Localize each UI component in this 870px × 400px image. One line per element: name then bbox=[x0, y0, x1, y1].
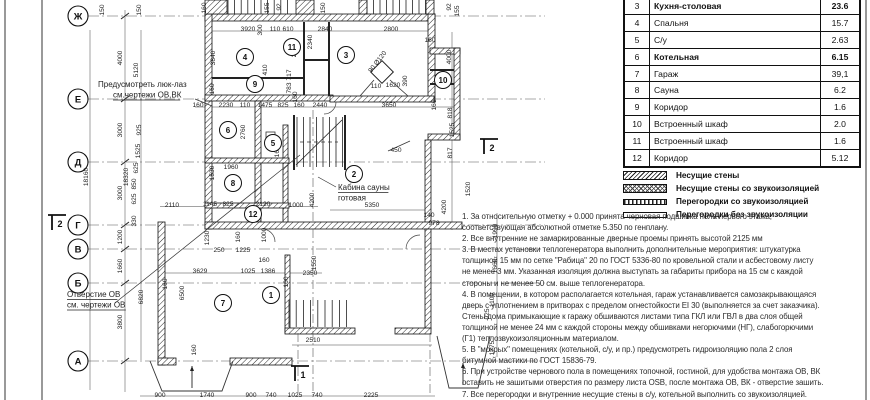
general-notes: 1. За относительную отметку + 0.000 прин… bbox=[462, 211, 866, 400]
dimension-label: 740 bbox=[311, 392, 322, 399]
dimension-label: 900 bbox=[154, 392, 165, 399]
dimension-label: 2340 bbox=[307, 34, 314, 49]
room-table-cell-name: Котельная bbox=[650, 48, 821, 65]
dimension-label: 4200 bbox=[441, 199, 448, 214]
walls bbox=[158, 0, 462, 365]
dimension-labels: 1501501601559215092155392030011061028402… bbox=[83, 2, 499, 399]
dimension-label: 160 bbox=[201, 2, 208, 13]
dimension-label: 140 bbox=[423, 212, 434, 219]
room-table-row: 4Спальня15.7 bbox=[624, 14, 860, 31]
dimension-label: 3920 bbox=[241, 26, 256, 33]
porches-and-leaders bbox=[115, 99, 490, 395]
dimension-label: 300 bbox=[257, 24, 264, 35]
note-line: 2. Все внутренние не замаркированные две… bbox=[462, 233, 866, 244]
dimension-label: 3840 bbox=[210, 50, 217, 65]
legend-item: Несущие стены bbox=[623, 169, 868, 182]
dimension-label: 18320 bbox=[123, 168, 130, 187]
dimension-label: 2440 bbox=[313, 102, 328, 109]
room-table-row: 12Коридор5.12 bbox=[624, 150, 860, 167]
dimension-label: 900 bbox=[245, 392, 256, 399]
note-line: битумной мастики по ГОСТ 15836-79. bbox=[462, 355, 866, 366]
room-table-cell-num: 7 bbox=[624, 65, 650, 82]
room-table-cell-name: Коридор bbox=[650, 150, 821, 167]
room-number: 7 bbox=[221, 299, 226, 308]
dimension-label: 160 bbox=[292, 91, 299, 102]
room-table-cell-area: 23.6 bbox=[821, 0, 861, 14]
room-table-cell-area: 2.63 bbox=[821, 31, 861, 48]
dimension-label: 2760 bbox=[240, 124, 247, 139]
annotation-text: готовая bbox=[338, 194, 366, 203]
dimension-label: 160 bbox=[283, 276, 290, 287]
wall-segment bbox=[395, 328, 431, 334]
leader-line bbox=[318, 177, 336, 187]
room-number: 10 bbox=[439, 76, 448, 85]
room-table-row: 3Кухня-столовая23.6 bbox=[624, 0, 860, 14]
dimension-label: 390 bbox=[402, 75, 409, 86]
note-line: 5. В "мокрых" помещениях (котельной, с/у… bbox=[462, 344, 866, 355]
wall-segment bbox=[425, 229, 431, 329]
note-line: 3. В местах установки теплогенератора вы… bbox=[462, 244, 866, 255]
dimension-label: 625 bbox=[131, 193, 138, 204]
dimension-label: 3629 bbox=[193, 268, 208, 275]
legend-label: Несущие стены со звукоизоляцией bbox=[676, 184, 819, 193]
room-table-cell-num: 5 bbox=[624, 31, 650, 48]
wall-segment bbox=[205, 14, 435, 21]
room-table-cell-area: 1.6 bbox=[821, 99, 861, 116]
dimension-label: 1660 bbox=[117, 258, 124, 273]
dimension-label: 2225 bbox=[364, 392, 379, 399]
room-table-cell-area: 5.12 bbox=[821, 150, 861, 167]
room-number: 8 bbox=[231, 179, 236, 188]
wall-segment bbox=[205, 0, 227, 14]
room-number: 9 bbox=[253, 80, 258, 89]
dimension-label: 1000 bbox=[261, 227, 268, 242]
dimension-label: 92 bbox=[446, 3, 453, 11]
room-table-row: 5С/у2.63 bbox=[624, 31, 860, 48]
dimension-label: 717 bbox=[286, 69, 293, 80]
dimension-label: 2800 bbox=[384, 26, 399, 33]
wall-segment bbox=[296, 0, 314, 14]
dimension-label: 92 bbox=[276, 3, 283, 11]
dimension-label: 155 bbox=[454, 5, 461, 16]
porch-outline bbox=[150, 361, 233, 391]
section-number: 2 bbox=[489, 143, 494, 153]
note-line: толщиной 15 мм по сетке "Рабица" 20 по Г… bbox=[462, 255, 866, 266]
dimension-label: 1025 bbox=[241, 268, 256, 275]
dimension-label: 825 bbox=[277, 102, 288, 109]
dimension-label: 3650 bbox=[382, 102, 397, 109]
room-table-cell-area: 39,1 bbox=[821, 65, 861, 82]
dimension-label: 1620 bbox=[386, 82, 401, 89]
room-table-cell-num: 10 bbox=[624, 116, 650, 133]
dimension-label: 3800 bbox=[117, 314, 124, 329]
note-line: Стены дома примыкающие к гаражу обшивают… bbox=[462, 311, 866, 322]
room-table-cell-num: 3 bbox=[624, 0, 650, 14]
dimension-label: 1550 bbox=[311, 255, 318, 270]
room-number: 6 bbox=[226, 126, 231, 135]
annotations: Предусмотреть люк-лазсм.чертежи ОВ,ВКОтв… bbox=[67, 80, 390, 310]
dimension-label: 110 bbox=[270, 26, 281, 33]
dimension-label: 1740 bbox=[200, 392, 215, 399]
dimension-label: 160 bbox=[209, 83, 216, 94]
axis-letter: Д bbox=[75, 157, 82, 168]
room-table-cell-num: 9 bbox=[624, 99, 650, 116]
dimension-label: 18160 bbox=[83, 168, 90, 187]
room-number: 4 bbox=[243, 53, 248, 62]
axis-letter: Е bbox=[75, 94, 81, 105]
dimension-label: 160 bbox=[431, 99, 438, 110]
room-table-cell-area: 15.7 bbox=[821, 14, 861, 31]
legend-swatch-bearing bbox=[623, 171, 667, 180]
wall-segment bbox=[205, 14, 212, 229]
dimension-label: 2510 bbox=[306, 337, 321, 344]
annotation-text: Отверстие ОВ bbox=[67, 290, 120, 299]
wall-segment bbox=[205, 222, 462, 229]
room-table-cell-name: Встроенный шкаф bbox=[650, 116, 821, 133]
room-table-cell-name: Спальня bbox=[650, 14, 821, 31]
room-table-cell-num: 12 bbox=[624, 150, 650, 167]
dimension-label: 978 bbox=[428, 220, 439, 227]
door-swing-arc bbox=[406, 235, 420, 249]
dimension-label: 625 bbox=[133, 162, 140, 173]
wall-segment bbox=[285, 328, 355, 334]
dimension-label: 330 bbox=[131, 215, 138, 226]
dimension-label: 2110 bbox=[165, 202, 180, 209]
wall-segment bbox=[158, 222, 165, 365]
dimension-label: 2230 bbox=[219, 102, 234, 109]
room-table-cell-name: Сауна bbox=[650, 82, 821, 99]
dimension-label: 110 bbox=[240, 102, 251, 109]
note-line: 7. Все перегородки и внутренние несущие … bbox=[462, 389, 866, 400]
dimension-label: 1225 bbox=[236, 247, 251, 254]
note-line: дверь с уплотнением в притворах с предел… bbox=[462, 300, 866, 311]
dimension-label: 410 bbox=[262, 64, 269, 75]
dimension-label: 1200 bbox=[117, 229, 124, 244]
dimension-label: 825 bbox=[222, 201, 233, 208]
dimension-label: 5120 bbox=[133, 62, 140, 77]
note-line: соответствующая абсолютной отметке 5.350… bbox=[462, 222, 866, 233]
room-table-row: 7Гараж39,1 bbox=[624, 65, 860, 82]
axis-letter: Ж bbox=[73, 11, 83, 22]
dimension-label: 1960 bbox=[224, 164, 239, 171]
legend-label: Перегородки со звукоизоляцией bbox=[676, 197, 808, 206]
dimension-label: 1386 bbox=[261, 268, 276, 275]
dimension-label: 1145 bbox=[203, 201, 218, 208]
stair-break-line bbox=[296, 120, 342, 165]
wall-segment bbox=[230, 358, 292, 365]
section-number: 1 bbox=[300, 370, 305, 380]
dimension-label: 160 bbox=[191, 344, 198, 355]
dimension-label: 818 bbox=[447, 107, 454, 118]
room-table-cell-name: Коридор bbox=[650, 99, 821, 116]
room-table-row: 8Сауна6.2 bbox=[624, 82, 860, 99]
room-table-row: 11Встроенный шкаф1.6 bbox=[624, 133, 860, 150]
room-table-cell-name: Гараж bbox=[650, 65, 821, 82]
room-table-cell-area: 2.0 bbox=[821, 116, 861, 133]
axis-letter: А bbox=[75, 356, 82, 367]
annotation-text: см.чертежи ОВ,ВК bbox=[113, 91, 182, 100]
room-table-cell-name: Встроенный шкаф bbox=[650, 133, 821, 150]
dimension-label: 160 bbox=[192, 102, 203, 109]
dimension-label: 160 bbox=[258, 257, 269, 264]
dimension-label: 1025 bbox=[288, 392, 303, 399]
room-number: 1 bbox=[269, 291, 274, 300]
legend-item: Перегородки со звукоизоляцией bbox=[623, 195, 868, 208]
axis-letter: Г bbox=[75, 220, 81, 231]
annotation-text: Предусмотреть люк-лаз bbox=[98, 80, 187, 89]
room-number: 12 bbox=[249, 210, 258, 219]
dimension-label: 160 bbox=[424, 37, 435, 44]
annotation-text: см. чертежи ОВ bbox=[67, 301, 125, 310]
wall-segment bbox=[205, 203, 289, 208]
dimension-label: 610 bbox=[282, 26, 293, 33]
dimension-label: 740 bbox=[265, 392, 276, 399]
dimension-label: 160 bbox=[162, 278, 169, 289]
wall-segment bbox=[205, 95, 333, 101]
dimension-label: 160 bbox=[293, 102, 304, 109]
dimension-label: 1520 bbox=[465, 181, 472, 196]
note-line: оставить не зашитыми отверстия по размер… bbox=[462, 377, 866, 388]
dimension-label: 150 bbox=[136, 4, 143, 15]
room-number: 11 bbox=[288, 43, 297, 52]
dimension-label: 3000 bbox=[117, 122, 124, 137]
dimension-label: 1525 bbox=[449, 122, 456, 137]
wall-segment bbox=[428, 14, 435, 102]
dimension-label: 150 bbox=[320, 2, 327, 13]
room-number: 3 bbox=[344, 51, 349, 60]
dimension-label: 4200 bbox=[309, 192, 316, 207]
axis-letter: В bbox=[75, 244, 82, 255]
dimension-label: 1230 bbox=[204, 230, 211, 245]
dimension-label: 1530 bbox=[209, 165, 216, 180]
dimension-label: 925 bbox=[136, 124, 143, 135]
dimension-label: 1525 bbox=[135, 143, 142, 158]
dimension-label: 150 bbox=[99, 4, 106, 15]
note-line: 1. За относительную отметку + 0.000 прин… bbox=[462, 211, 866, 222]
legend-swatch-partition-sound bbox=[623, 199, 667, 205]
note-line: не менее 3 мм. Указанная изоляция должна… bbox=[462, 266, 866, 277]
legend-label: Несущие стены bbox=[676, 171, 739, 180]
note-line: толщиной не менее 24 мм с каждой стороны… bbox=[462, 322, 866, 333]
room-number: 2 bbox=[352, 170, 357, 179]
room-number: 5 bbox=[271, 139, 276, 148]
dimension-label: 1000 bbox=[289, 202, 304, 209]
legend-item: Несущие стены со звукоизоляцией bbox=[623, 182, 868, 195]
wall-segment bbox=[283, 125, 288, 227]
dimension-label: 817 bbox=[447, 147, 454, 158]
annotation-text: Кабина сауны bbox=[338, 183, 390, 192]
dimension-label: 155 bbox=[264, 2, 271, 13]
dimension-label: 4000 bbox=[446, 49, 453, 64]
room-table-row: 9Коридор1.6 bbox=[624, 99, 860, 116]
room-table-cell-num: 8 bbox=[624, 82, 650, 99]
dimension-label: 3000 bbox=[117, 185, 124, 200]
dimension-label: 850 bbox=[131, 178, 138, 189]
note-line: 4. В помещении, в котором располагается … bbox=[462, 289, 866, 300]
dimension-label: 110 bbox=[371, 83, 382, 90]
room-table-row: 10Встроенный шкаф2.0 bbox=[624, 116, 860, 133]
dimension-label: 1475 bbox=[258, 102, 273, 109]
wall-segment bbox=[359, 0, 367, 14]
section-number: 2 bbox=[57, 219, 62, 229]
entry-arrowhead bbox=[190, 366, 194, 371]
room-table-cell-num: 4 bbox=[624, 14, 650, 31]
note-line: стороны и не менее 50 см. выше теплогене… bbox=[462, 278, 866, 289]
axis-letter: Б bbox=[75, 278, 82, 289]
dimension-label: 6500 bbox=[179, 285, 186, 300]
dimension-label: 4000 bbox=[117, 50, 124, 65]
room-table-cell-area: 1.6 bbox=[821, 133, 861, 150]
note-line: 6. При устройстве чернового пола в помещ… bbox=[462, 366, 866, 377]
wall-segment bbox=[205, 158, 289, 163]
room-table-cell-num: 6 bbox=[624, 48, 650, 65]
note-line: (Г1) теплозвукоизоляционным материалом. bbox=[462, 333, 866, 344]
wall-segment bbox=[426, 0, 434, 14]
room-table-cell-name: С/у bbox=[650, 31, 821, 48]
dimension-label: 5350 bbox=[365, 202, 380, 209]
dimension-label: 250 bbox=[213, 247, 224, 254]
room-schedule-table: 3Кухня-столовая23.64Спальня15.75С/у2.636… bbox=[623, 0, 861, 168]
legend-swatch-bearing-sound bbox=[623, 184, 667, 193]
dimension-label: 6820 bbox=[138, 289, 145, 304]
dimension-label: 2840 bbox=[318, 26, 333, 33]
room-table-row: 6Котельная6.15 bbox=[624, 48, 860, 65]
dimension-label: 160 bbox=[235, 231, 242, 242]
room-table-cell-name: Кухня-столовая bbox=[650, 0, 821, 14]
dimension-label: 450 bbox=[390, 147, 401, 154]
room-table-cell-area: 6.2 bbox=[821, 82, 861, 99]
room-table-cell-num: 11 bbox=[624, 133, 650, 150]
wall-segment bbox=[158, 358, 176, 365]
room-table-cell-area: 6.15 bbox=[821, 48, 861, 65]
